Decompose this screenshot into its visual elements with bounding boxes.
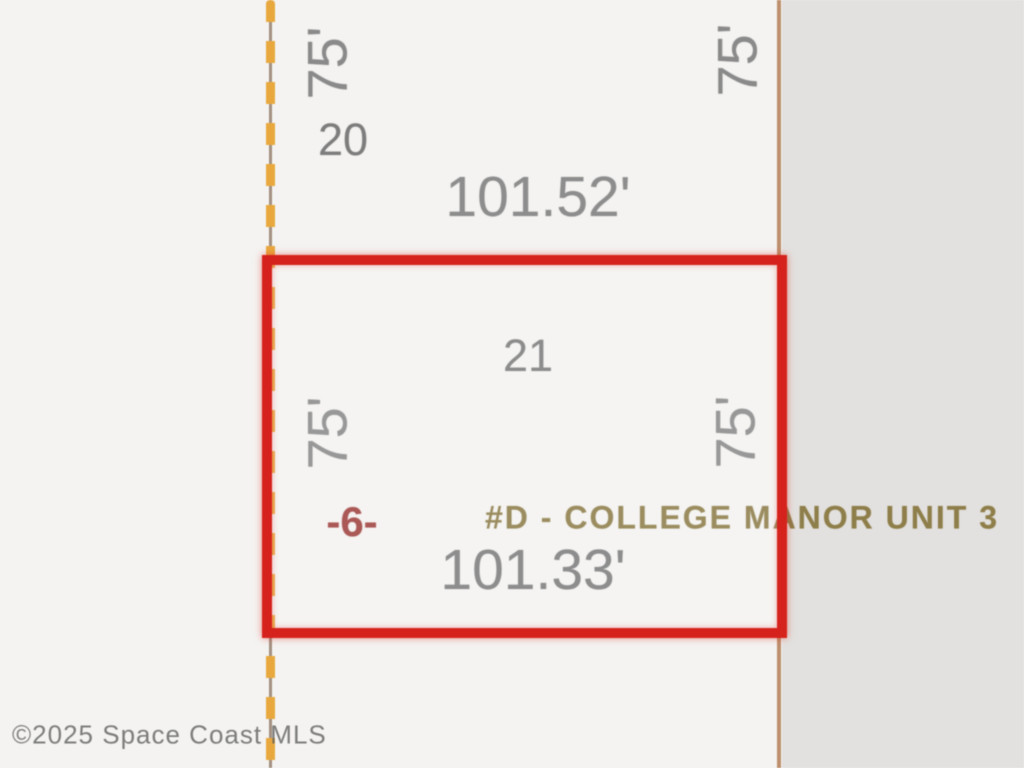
adjacent-parcel-area <box>782 0 1024 768</box>
plat-map: 75' 20 101.52' 75' #D - COLLEGE MANOR UN… <box>0 0 1024 768</box>
lot-20-west-dimension: 75' <box>295 27 360 100</box>
lot-21-bottom-dimension: 101.33' <box>440 537 625 603</box>
lot-20-east-dimension: 75' <box>705 24 770 97</box>
lot-20-number: 20 <box>318 114 368 166</box>
mls-watermark: ©2025 Space Coast MLS <box>12 720 327 751</box>
lot-20-bottom-dimension: 101.52' <box>445 164 630 230</box>
